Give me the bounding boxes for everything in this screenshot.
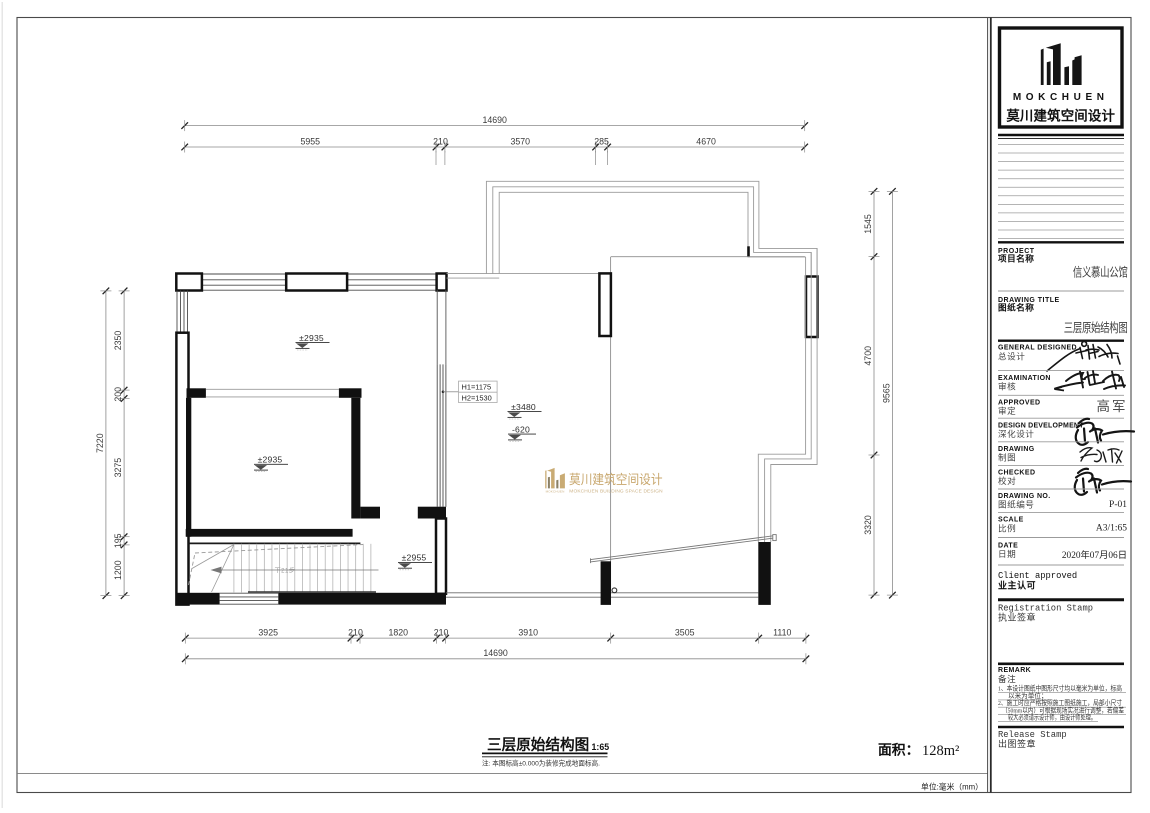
svg-text:审定: 审定 [998, 405, 1016, 416]
svg-text:1820: 1820 [389, 627, 409, 637]
svg-text:±2935: ±2935 [258, 455, 283, 465]
svg-text:备注: 备注 [998, 673, 1016, 684]
svg-text:高军: 高军 [1097, 398, 1128, 414]
svg-text:3925: 3925 [258, 627, 278, 637]
svg-text:下21步: 下21步 [275, 567, 296, 575]
svg-text:3910: 3910 [518, 627, 538, 637]
svg-text:REMARK: REMARK [998, 667, 1031, 674]
svg-text:285: 285 [594, 136, 609, 146]
svg-text:图纸编号: 图纸编号 [998, 499, 1034, 510]
svg-text:图纸名称: 图纸名称 [998, 301, 1034, 312]
svg-text:校对: 校对 [998, 475, 1016, 486]
svg-text:审核: 审核 [998, 381, 1016, 392]
svg-text:制图: 制图 [998, 452, 1016, 463]
svg-text:执业签章: 执业签章 [998, 612, 1036, 623]
svg-text:3275: 3275 [113, 458, 123, 478]
svg-text:14690: 14690 [483, 648, 508, 658]
svg-text:-620: -620 [512, 424, 530, 434]
svg-text:2、施工时应严格按照施工图纸施工，局部小尺寸: 2、施工时应严格按照施工图纸施工，局部小尺寸 [998, 698, 1122, 707]
svg-text:出图签章: 出图签章 [998, 738, 1036, 749]
svg-text:P-01: P-01 [1109, 500, 1127, 510]
svg-text:±3480: ±3480 [511, 402, 536, 412]
svg-text:H1=1175: H1=1175 [462, 383, 492, 392]
svg-text:（50mm以内）可根据现场实况进行调整，若偏差: （50mm以内）可根据现场实况进行调整，若偏差 [1002, 705, 1124, 714]
svg-text:1110: 1110 [773, 627, 791, 637]
svg-text:5955: 5955 [301, 136, 321, 146]
svg-text:200: 200 [113, 387, 123, 402]
svg-text:2350: 2350 [113, 331, 123, 351]
svg-text:210: 210 [433, 136, 448, 146]
svg-text:三层原始结构图: 三层原始结构图 [487, 736, 589, 754]
svg-text:3505: 3505 [675, 627, 695, 637]
svg-text:较大必须请示设计师，由设计师处理。: 较大必须请示设计师，由设计师处理。 [1008, 713, 1096, 722]
svg-text:莫川建筑空间设计: 莫川建筑空间设计 [1005, 107, 1115, 123]
svg-text:4670: 4670 [696, 136, 716, 146]
svg-text:MOKCHUEN: MOKCHUEN [546, 489, 565, 493]
svg-text:Client approved: Client approved [998, 571, 1077, 581]
svg-text:3320: 3320 [863, 515, 873, 535]
svg-text:1545: 1545 [863, 214, 873, 234]
svg-text:128m²: 128m² [922, 743, 960, 759]
svg-text:深化设计: 深化设计 [998, 428, 1034, 439]
svg-text:三层原始结构图: 三层原始结构图 [1064, 319, 1128, 335]
svg-text:总设计: 总设计 [998, 351, 1025, 362]
svg-text:日期: 日期 [998, 549, 1016, 559]
svg-text:莫川建筑空间设计: 莫川建筑空间设计 [569, 471, 663, 487]
svg-text:1、本设计图纸中图形尺寸均以毫米为单位，标高: 1、本设计图纸中图形尺寸均以毫米为单位，标高 [998, 684, 1122, 693]
svg-text:210: 210 [348, 627, 363, 637]
svg-text:单位:毫米（mm）: 单位:毫米（mm） [921, 782, 983, 792]
svg-text:9565: 9565 [882, 383, 892, 403]
svg-text:±2935: ±2935 [299, 333, 324, 343]
svg-text:比例: 比例 [998, 522, 1016, 533]
svg-text:业主认可: 业主认可 [998, 580, 1036, 591]
svg-text:7220: 7220 [95, 433, 105, 453]
svg-text:信义慕山公馆: 信义慕山公馆 [1073, 264, 1128, 280]
svg-text:A3/1:65: A3/1:65 [1096, 524, 1127, 534]
svg-text:195: 195 [113, 533, 123, 548]
svg-text:MOKCHUEN BUILDING SPACE DESIGN: MOKCHUEN BUILDING SPACE DESIGN [569, 489, 663, 495]
svg-text:以米为单位；: 以米为单位； [1008, 691, 1048, 700]
svg-text:H2=1530: H2=1530 [462, 393, 492, 402]
svg-text:210: 210 [434, 627, 449, 637]
svg-text:2020年07月06日: 2020年07月06日 [1062, 549, 1127, 561]
svg-text:4700: 4700 [863, 346, 873, 366]
svg-text:14690: 14690 [482, 115, 507, 125]
svg-text:1200: 1200 [113, 560, 123, 580]
svg-text:1:65: 1:65 [592, 742, 610, 752]
svg-text:3570: 3570 [511, 136, 531, 146]
svg-text:MOKCHUEN: MOKCHUEN [1013, 92, 1109, 103]
svg-text:项目名称: 项目名称 [998, 252, 1034, 263]
svg-text:面积：: 面积： [878, 742, 919, 758]
svg-text:±2955: ±2955 [402, 553, 427, 563]
svg-text:注: 本图标高±0.000为装修完成地面标高.: 注: 本图标高±0.000为装修完成地面标高. [482, 758, 600, 767]
